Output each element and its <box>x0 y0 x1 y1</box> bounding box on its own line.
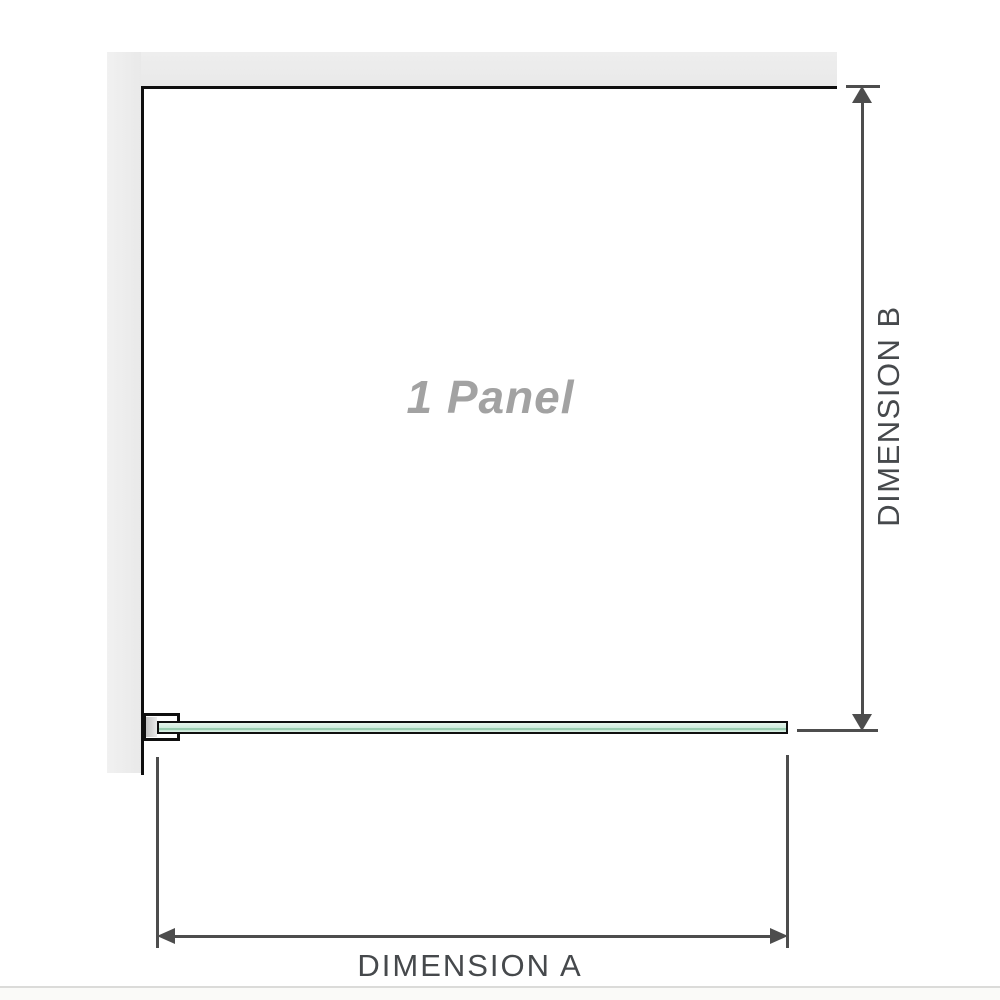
arrow-up-icon <box>852 86 872 103</box>
arrow-down-icon <box>852 714 872 731</box>
arrow-left-icon <box>157 928 175 944</box>
dimension-a-line <box>173 935 772 938</box>
dimension-a-extension-left <box>156 757 159 948</box>
panel-area: 1 Panel <box>144 89 837 704</box>
panel-count-label: 1 Panel <box>406 370 574 424</box>
dimension-diagram: 1 Panel DIMENSION B DIMENSION A <box>0 0 1000 1000</box>
footer-strip <box>0 988 1000 1000</box>
wall-left <box>107 52 141 773</box>
dimension-b-label: DIMENSION B <box>871 305 907 526</box>
dimension-a-extension-right <box>786 755 789 948</box>
dimension-a-label: DIMENSION A <box>357 948 582 984</box>
dimension-b-line <box>861 99 864 717</box>
wall-top <box>107 52 837 86</box>
arrow-right-icon <box>770 928 788 944</box>
glass-panel-bar <box>157 721 788 734</box>
wall-bracket-pad <box>146 717 157 737</box>
